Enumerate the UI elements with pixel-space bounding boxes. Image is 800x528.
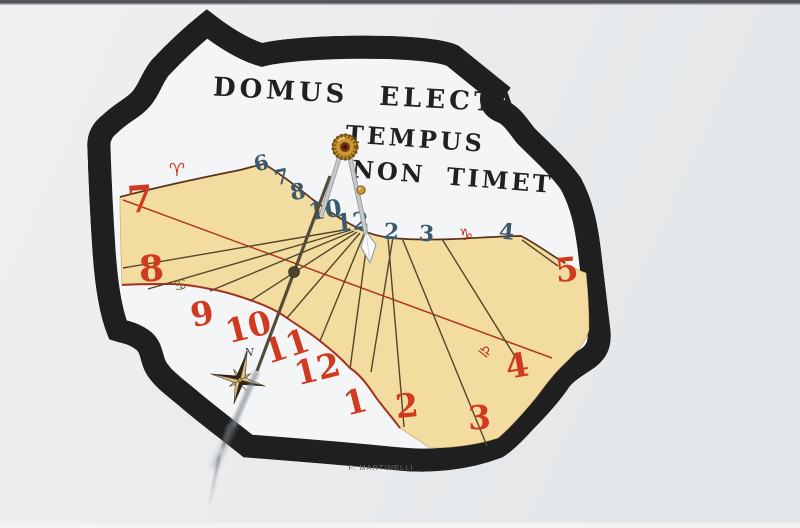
zodiac-cancer-symbol: ♋: [172, 275, 188, 295]
artist-signature: F. MARTINELLI: [349, 463, 414, 472]
hour-numeral-blue: 2: [383, 219, 400, 246]
hour-numeral-red: 8: [138, 247, 165, 290]
sundial-scene: ♈♋♎♑ 6781012234 78910111212345 A.D. 2004…: [0, 0, 800, 528]
zodiac-capricorn-symbol: ♑: [459, 225, 473, 244]
hour-numeral-red: 2: [393, 385, 420, 426]
hour-numeral-red: 7: [126, 176, 155, 222]
gilded-rosette: [332, 134, 358, 160]
strut-ball-highlight: [358, 187, 360, 189]
photo-top-edge: [0, 0, 800, 4]
strut-gold-ball: [357, 186, 365, 194]
hour-numeral-blue: 3: [418, 221, 435, 248]
hour-numeral-red: 5: [553, 249, 580, 290]
photo-top-edge-fade: [0, 4, 800, 6]
sundial-photograph: ♈♋♎♑ 6781012234 78910111212345 A.D. 2004…: [0, 0, 800, 528]
nodus-ball: [289, 267, 300, 278]
hour-numeral-blue: 4: [498, 218, 516, 245]
compass-north-label: N: [243, 346, 254, 359]
photo-bottom-edge: [0, 523, 800, 528]
hour-numeral-red: 3: [467, 397, 492, 437]
zodiac-aries-symbol: ♈: [169, 160, 185, 181]
